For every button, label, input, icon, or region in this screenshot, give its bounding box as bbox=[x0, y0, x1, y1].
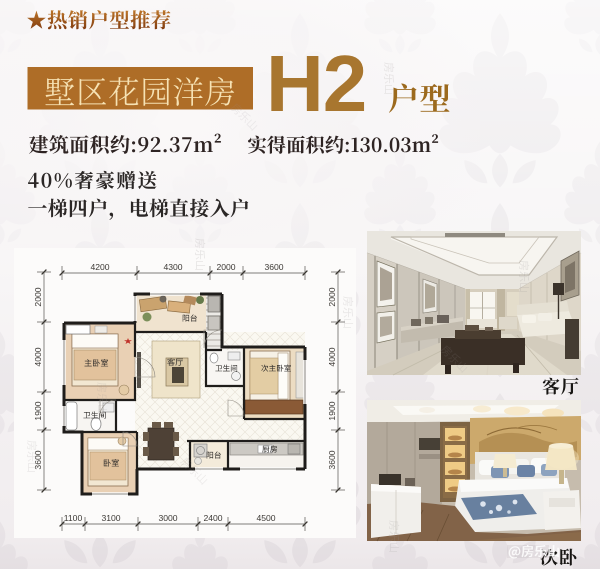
svg-text:3600: 3600 bbox=[327, 450, 337, 469]
svg-text:H2: H2 bbox=[266, 39, 366, 128]
svg-text:3600: 3600 bbox=[264, 262, 283, 272]
svg-text:1900: 1900 bbox=[327, 401, 337, 420]
svg-text:4500: 4500 bbox=[256, 513, 275, 523]
svg-text:2000: 2000 bbox=[216, 262, 235, 272]
svg-text:2400: 2400 bbox=[203, 513, 222, 523]
svg-text:4300: 4300 bbox=[163, 262, 182, 272]
svg-text:3100: 3100 bbox=[101, 513, 120, 523]
svg-text:2000: 2000 bbox=[327, 287, 337, 306]
svg-text:4000: 4000 bbox=[327, 347, 337, 366]
svg-text:3000: 3000 bbox=[158, 513, 177, 523]
svg-text:4200: 4200 bbox=[90, 262, 109, 272]
svg-text:1100: 1100 bbox=[64, 513, 83, 523]
svg-text:2000: 2000 bbox=[33, 287, 43, 306]
svg-text:1900: 1900 bbox=[33, 401, 43, 420]
svg-text:4000: 4000 bbox=[33, 347, 43, 366]
